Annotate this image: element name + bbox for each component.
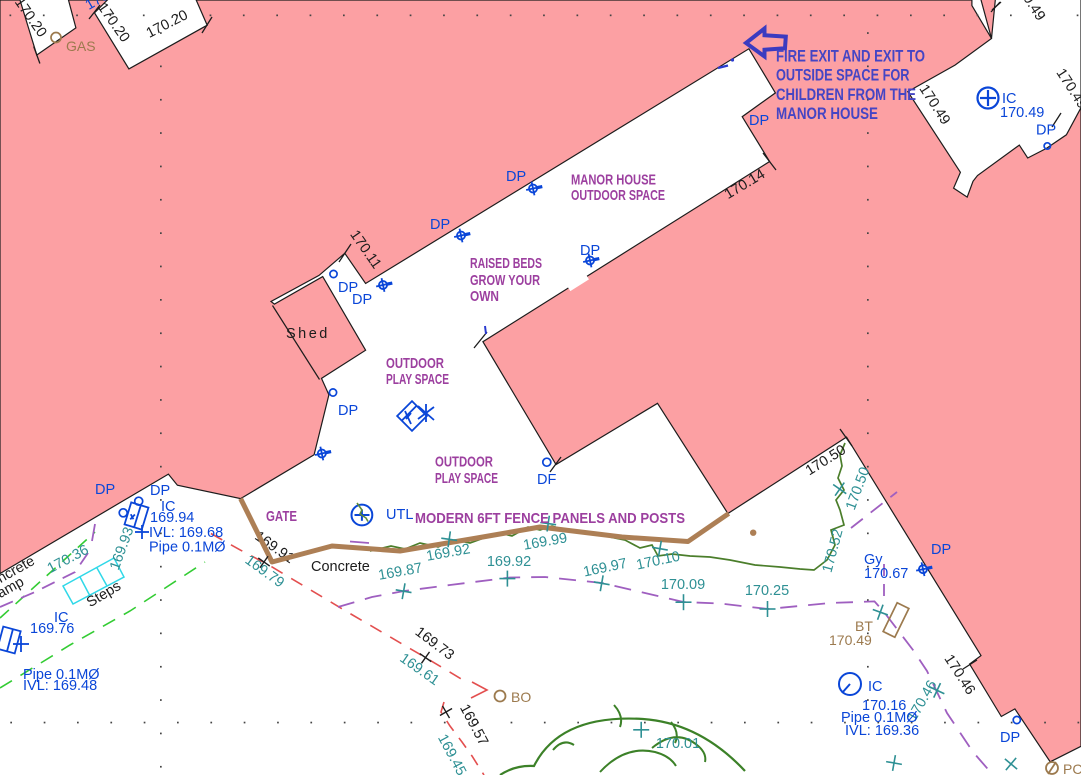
- svg-text:DP: DP: [430, 217, 450, 233]
- svg-text:UTL: UTL: [386, 507, 413, 523]
- svg-text:DP: DP: [506, 169, 526, 185]
- svg-text:PLAY SPACE: PLAY SPACE: [435, 470, 498, 487]
- svg-text:Shed: Shed: [286, 326, 330, 342]
- svg-text:MANOR HOUSE: MANOR HOUSE: [776, 105, 878, 123]
- svg-text:OUTDOOR: OUTDOOR: [435, 454, 493, 471]
- svg-text:MODERN 6FT FENCE PANELS AND PO: MODERN 6FT FENCE PANELS AND POSTS: [415, 510, 685, 527]
- svg-text:GATE: GATE: [266, 508, 297, 525]
- svg-text:DP: DP: [1000, 730, 1020, 746]
- svg-text:DP: DP: [580, 243, 600, 259]
- svg-text:CHILDREN FROM THE: CHILDREN FROM THE: [776, 86, 916, 104]
- svg-text:IC: IC: [868, 679, 883, 695]
- svg-text:BO: BO: [511, 689, 531, 705]
- svg-text:GROW YOUR: GROW YOUR: [470, 272, 540, 289]
- svg-text:170.67: 170.67: [864, 566, 908, 582]
- svg-text:PLAY SPACE: PLAY SPACE: [386, 371, 449, 388]
- svg-text:DP: DP: [1036, 123, 1056, 139]
- svg-text:IVL: 169.36: IVL: 169.36: [845, 723, 919, 739]
- svg-text:OWN: OWN: [470, 288, 499, 305]
- svg-text:169.92: 169.92: [487, 554, 531, 570]
- svg-text:OUTDOOR: OUTDOOR: [386, 355, 444, 372]
- svg-text:FIRE EXIT AND EXIT TO: FIRE EXIT AND EXIT TO: [776, 48, 925, 66]
- svg-text:Pipe 0.1MØ: Pipe 0.1MØ: [149, 540, 226, 556]
- svg-text:OUTDOOR SPACE: OUTDOOR SPACE: [571, 187, 665, 204]
- svg-text:MANOR HOUSE: MANOR HOUSE: [571, 172, 656, 189]
- svg-text:DF: DF: [537, 472, 556, 488]
- svg-text:GAS: GAS: [66, 38, 96, 54]
- svg-text:DP: DP: [352, 292, 372, 308]
- svg-text:PC: PC: [1063, 761, 1081, 775]
- svg-text:170.49: 170.49: [1000, 105, 1044, 121]
- svg-text:170.01: 170.01: [656, 736, 700, 752]
- svg-text:Concrete: Concrete: [311, 559, 370, 575]
- svg-text:DP: DP: [338, 403, 358, 419]
- svg-text:DP: DP: [749, 113, 769, 129]
- svg-text:IVL: 169.48: IVL: 169.48: [23, 678, 97, 694]
- svg-text:DP: DP: [931, 542, 951, 558]
- svg-text:170.49: 170.49: [829, 632, 872, 648]
- svg-text:170.25: 170.25: [745, 583, 789, 599]
- svg-text:OUTSIDE SPACE FOR: OUTSIDE SPACE FOR: [776, 67, 910, 85]
- svg-text:RAISED BEDS: RAISED BEDS: [470, 255, 542, 272]
- svg-text:169.76: 169.76: [30, 621, 74, 637]
- svg-text:DP: DP: [150, 483, 170, 499]
- svg-text:170.09: 170.09: [661, 577, 705, 593]
- svg-text:169.94: 169.94: [150, 510, 194, 526]
- svg-text:DP: DP: [95, 482, 115, 498]
